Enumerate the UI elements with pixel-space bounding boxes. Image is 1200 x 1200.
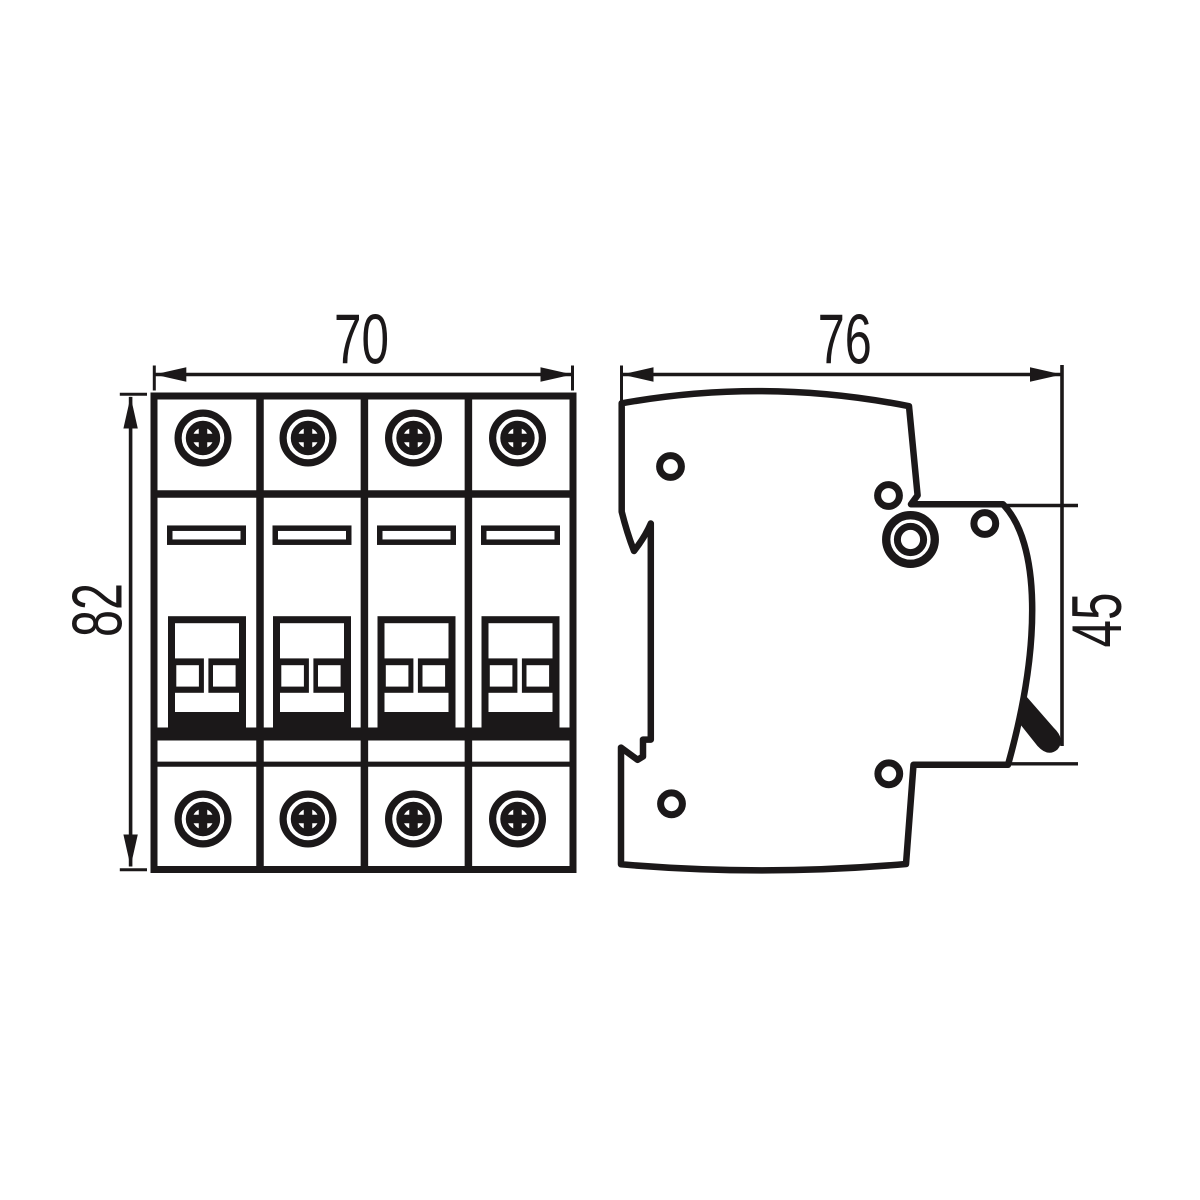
svg-text:82: 82 bbox=[58, 583, 137, 637]
svg-text:70: 70 bbox=[334, 300, 389, 379]
svg-text:45: 45 bbox=[1057, 593, 1136, 648]
svg-text:76: 76 bbox=[818, 299, 872, 378]
